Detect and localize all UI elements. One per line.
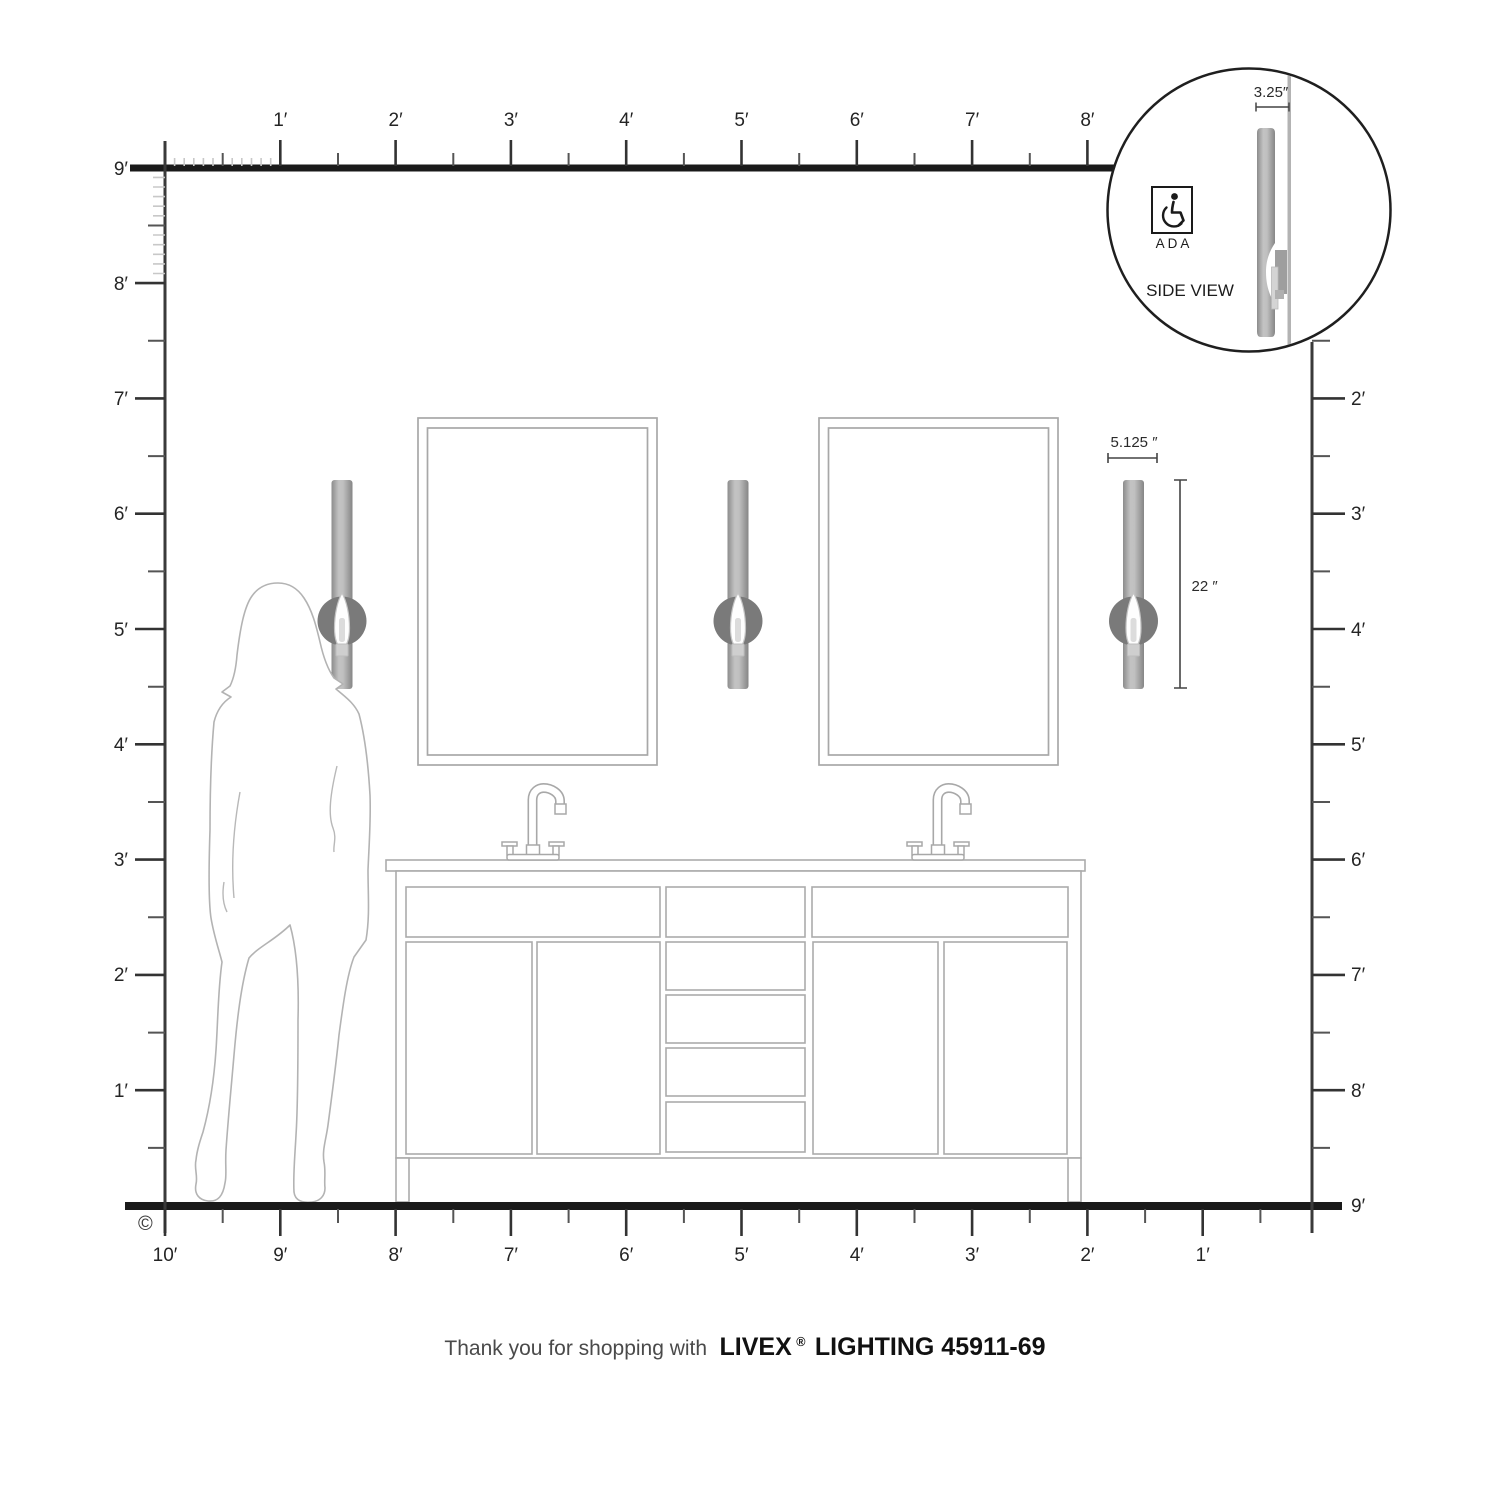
vanity-door-3 [813,942,938,1154]
vanity-door-1 [406,942,532,1154]
width-dimension-label: 5.125 ″ [1110,434,1158,451]
right-ruler-label-8ft: 8′ [1351,1081,1366,1102]
ada-badge-label: ADA [1156,236,1193,251]
left-ruler-label-3ft: 3′ [114,850,129,871]
bottom-ruler-label-1ft: 1′ [1196,1245,1211,1266]
footer-suffix: LIGHTING 45911-69 [815,1333,1046,1361]
right-ruler-line [1311,342,1314,1233]
bottom-ruler-label-6ft: 6′ [619,1245,634,1266]
left-ruler-label-6ft: 6′ [114,504,129,525]
vanity-drawer-4 [666,1102,805,1152]
copyright-mark: © [138,1213,153,1235]
top-ruler-label-8ft: 8′ [1080,110,1095,131]
right-ruler-label-6ft: 6′ [1351,850,1366,871]
ada-badge: ADA [1152,187,1192,251]
floor-line [125,1202,1342,1210]
footer-registered-mark: ® [796,1335,806,1349]
bottom-ruler-label-9ft: 9′ [273,1245,288,1266]
scale-diagram: 1′ 2′ 3′ 4′ 5′ 6′ 7′ 8′ 9′ 8′ 7′ 6′ 5′ 4… [0,0,1500,1500]
top-ruler-label-2ft: 2′ [389,110,404,131]
side-view-label: SIDE VIEW [1146,281,1234,300]
right-ruler-label-2ft: 2′ [1351,389,1366,410]
top-ruler-label-5ft: 5′ [734,110,749,131]
vanity-drawer-3 [666,1048,805,1096]
left-ruler-label-1ft: 1′ [114,1081,129,1102]
top-ruler-label-4ft: 4′ [619,110,634,131]
left-mirror [418,418,657,765]
vanity-drawer-2 [666,995,805,1043]
top-ruler-label-3ft: 3′ [504,110,519,131]
right-ruler-label-5ft: 5′ [1351,735,1366,756]
left-ruler-label-5ft: 5′ [114,620,129,641]
vanity-leg-right [1068,1158,1081,1202]
vanity-countertop [386,860,1085,871]
footer-text: Thank you for shopping with LIVEX ® LIGH… [444,1333,1045,1361]
right-ruler-label-7ft: 7′ [1351,965,1366,986]
right-ruler-label-4ft: 4′ [1351,620,1366,641]
left-ruler-label-2ft: 2′ [114,965,129,986]
vanity-cabinet [386,860,1085,1202]
footer-prefix: Thank you for shopping with [444,1337,707,1360]
bottom-ruler-label-8ft: 8′ [389,1245,404,1266]
left-ruler-label-9ft: 9′ [114,159,129,180]
right-ruler-label-3ft: 3′ [1351,504,1366,525]
bottom-ruler-label-3ft: 3′ [965,1245,980,1266]
vanity-top-drawer-left [406,887,660,937]
bottom-ruler-label-4ft: 4′ [850,1245,865,1266]
vanity-door-2 [537,942,660,1154]
right-ruler-label-9ft: 9′ [1351,1196,1366,1217]
bottom-ruler-label-7ft: 7′ [504,1245,519,1266]
left-ruler-label-4ft: 4′ [114,735,129,756]
vanity-top-drawer-center [666,887,805,937]
bottom-ruler-label-5ft: 5′ [734,1245,749,1266]
width-dimension: 5.125 ″ [1108,434,1158,463]
detail-circle [1108,69,1391,352]
vanity-leg-left [396,1158,409,1202]
vanity-top-drawer-right [812,887,1068,937]
depth-dimension-label: 3.25″ [1254,84,1289,101]
top-ruler-label-7ft: 7′ [965,110,980,131]
sconce-mount-knob [1275,290,1284,299]
top-ruler-label-1ft: 1′ [273,110,288,131]
vanity-door-4 [944,942,1067,1154]
height-dimension-label: 22 ″ [1192,578,1219,595]
right-mirror [819,418,1058,765]
bottom-ruler-label-10ft: 10′ [153,1245,178,1266]
footer-brand: LIVEX [720,1333,793,1361]
left-ruler-label-8ft: 8′ [114,274,129,295]
left-ruler-label-7ft: 7′ [114,389,129,410]
bottom-ruler-label-2ft: 2′ [1080,1245,1095,1266]
sconce-mount-bracket [1272,267,1279,309]
top-ruler-label-6ft: 6′ [850,110,865,131]
vanity-drawer-1 [666,942,805,990]
